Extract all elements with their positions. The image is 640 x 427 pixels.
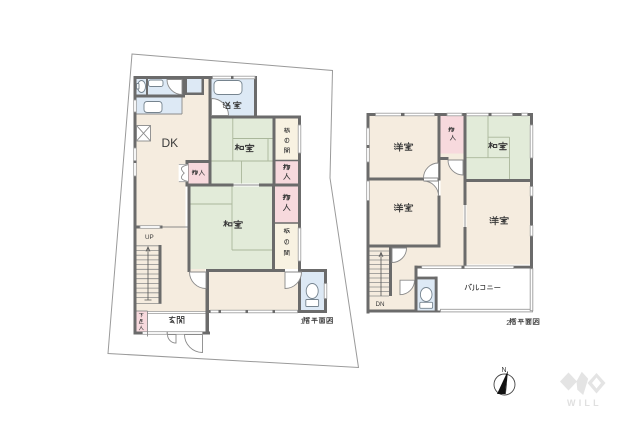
svg-text:WILL: WILL xyxy=(567,398,602,408)
svg-text:2: 2 xyxy=(506,318,510,327)
svg-text:UP: UP xyxy=(145,234,154,241)
svg-text:DN: DN xyxy=(376,301,386,308)
svg-text:DK: DK xyxy=(162,136,179,150)
svg-text:N: N xyxy=(502,367,507,374)
